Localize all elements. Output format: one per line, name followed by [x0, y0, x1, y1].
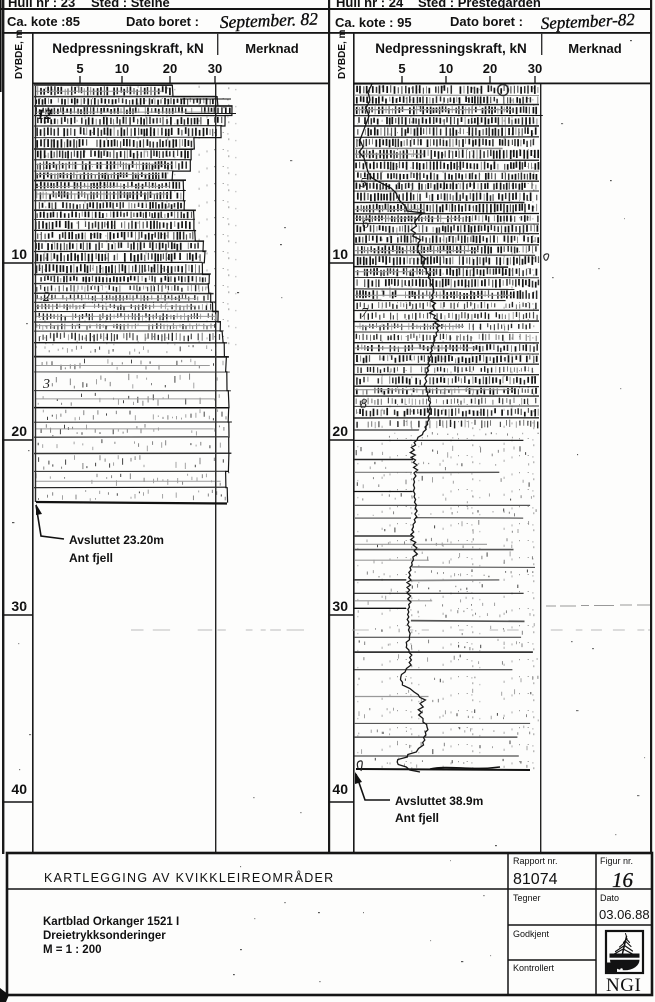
svg-text:Avsluttet 38.9m: Avsluttet 38.9m: [395, 794, 483, 808]
svg-text:M = 1 : 200: M = 1 : 200: [43, 944, 102, 956]
svg-text:20: 20: [11, 423, 27, 439]
svg-text:5: 5: [398, 61, 405, 76]
svg-text:Nedpressningskraft, kN: Nedpressningskraft, kN: [375, 41, 527, 56]
svg-text:DYBDE, m: DYBDE, m: [14, 29, 25, 79]
svg-text:Kartblad Orkanger 1521 I: Kartblad Orkanger 1521 I: [43, 916, 179, 928]
svg-text:Godkjent: Godkjent: [513, 929, 550, 939]
svg-text:Sted : Prestegarden: Sted : Prestegarden: [418, 0, 541, 10]
svg-text:03.06.88: 03.06.88: [599, 907, 650, 922]
svg-text:Avsluttet 23.20m: Avsluttet 23.20m: [69, 533, 164, 547]
svg-text:Ca. kote : 95: Ca. kote : 95: [335, 15, 412, 30]
svg-text:Sted : Steine: Sted : Steine: [91, 0, 170, 10]
svg-text:81074: 81074: [513, 871, 558, 888]
svg-text:7: 7: [361, 306, 369, 321]
svg-text:40: 40: [332, 781, 348, 797]
svg-text:Hull nr : 24: Hull nr : 24: [336, 0, 404, 10]
svg-text:6: 6: [362, 217, 369, 232]
svg-text:20: 20: [332, 423, 348, 439]
svg-text:16: 16: [612, 868, 634, 892]
svg-text:20: 20: [163, 61, 177, 76]
svg-text:30: 30: [332, 598, 348, 614]
svg-text:Ant fjell: Ant fjell: [69, 551, 113, 565]
svg-text:Kontrollert: Kontrollert: [513, 963, 555, 973]
svg-text:2: 2: [43, 290, 50, 305]
svg-text:Ant fjell: Ant fjell: [395, 811, 439, 825]
svg-text:September. 82: September. 82: [219, 9, 318, 32]
svg-text:Tegner: Tegner: [513, 893, 541, 903]
svg-text:Ca. kote :85: Ca. kote :85: [7, 14, 80, 29]
svg-text:3: 3: [42, 377, 50, 392]
svg-text:Nedpressningskraft, kN: Nedpressningskraft, kN: [52, 41, 204, 56]
svg-text:5: 5: [360, 176, 367, 191]
svg-text:10: 10: [332, 246, 348, 262]
svg-text:30: 30: [208, 61, 222, 76]
svg-text:20: 20: [483, 61, 497, 76]
svg-text:Dreietrykksonderinger: Dreietrykksonderinger: [43, 930, 166, 942]
svg-text:Figur nr.: Figur nr.: [600, 856, 633, 866]
svg-text:8: 8: [360, 397, 367, 412]
svg-text:Rapport nr.: Rapport nr.: [513, 856, 558, 866]
svg-text:5: 5: [76, 61, 83, 76]
svg-text:Dato: Dato: [600, 893, 619, 903]
svg-text:Merknad: Merknad: [568, 41, 622, 56]
svg-text:NGI: NGI: [606, 975, 641, 996]
svg-text:DYBDE, m: DYBDE, m: [337, 29, 348, 79]
svg-text:10: 10: [115, 61, 129, 76]
svg-text:Hull nr : 23: Hull nr : 23: [8, 0, 75, 10]
svg-text:12: 12: [37, 107, 53, 123]
svg-text:KARTLEGGING AV KVIKKLEIREOMRÅD: KARTLEGGING AV KVIKKLEIREOMRÅDER: [44, 870, 335, 885]
svg-text:30: 30: [11, 598, 27, 614]
svg-text:10: 10: [439, 61, 453, 76]
svg-text:10: 10: [11, 246, 27, 262]
svg-text:Dato boret :: Dato boret :: [126, 14, 199, 29]
svg-text:Dato boret :: Dato boret :: [450, 14, 523, 29]
svg-text:Merknad: Merknad: [245, 41, 299, 56]
svg-text:40: 40: [11, 781, 27, 797]
svg-text:30: 30: [528, 61, 542, 76]
